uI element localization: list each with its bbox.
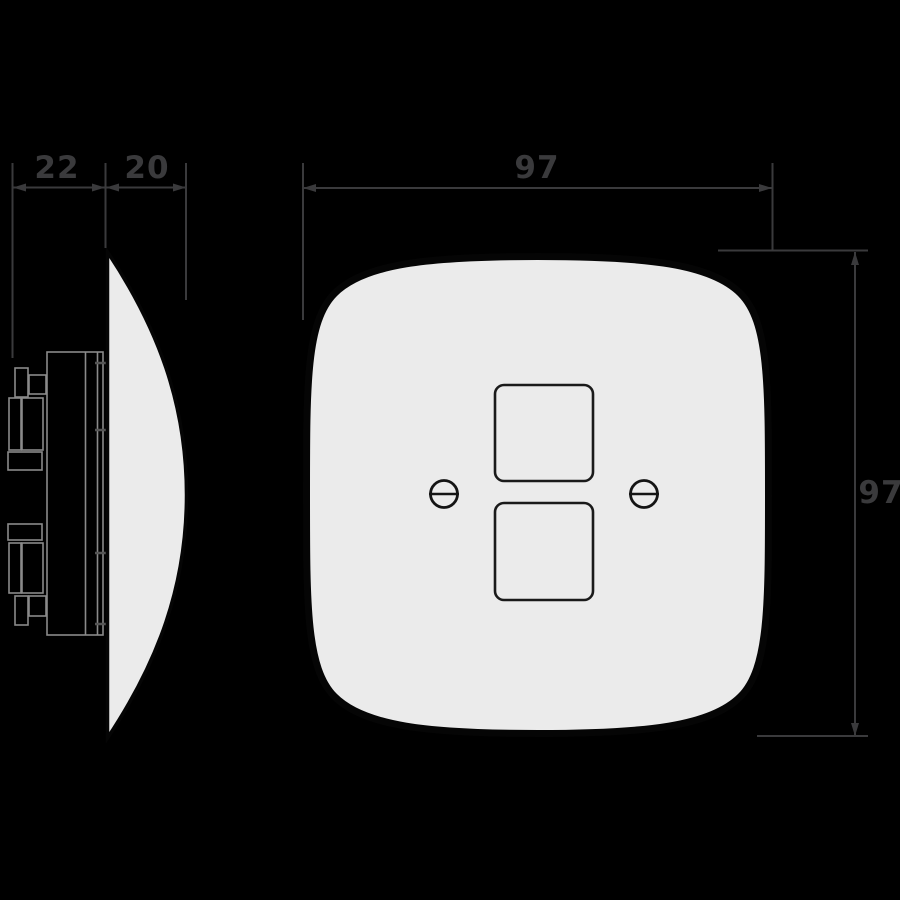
screw-left [429, 481, 459, 508]
arrow-97top-left [303, 184, 316, 192]
clamp-top-bar [8, 452, 42, 470]
clamp-bottom-bar [8, 524, 42, 540]
clamp-bottom-right [22, 543, 43, 593]
plate-side-profile [108, 252, 187, 738]
claw-bottom-2 [29, 596, 46, 616]
claw-bottom-1 [15, 596, 28, 625]
clamp-bottom-left [9, 543, 21, 593]
technical-drawing-canvas: 22 20 97 97 [0, 0, 900, 900]
dim-label-plate-depth: 20 [115, 153, 179, 184]
front-view [307, 257, 769, 734]
claw-top-2 [29, 375, 46, 394]
plate-front-face [307, 257, 769, 734]
plate-dimension-drawing [0, 0, 900, 900]
screw-right [629, 481, 659, 508]
side-view [8, 252, 187, 738]
dim-label-plate-width: 97 [505, 153, 569, 184]
claw-top-1 [15, 368, 28, 397]
dim-label-plate-height: 97 [849, 478, 900, 509]
mechanism-body [47, 352, 103, 635]
clamp-top-left [9, 398, 21, 450]
arrow-22-left [13, 184, 26, 192]
clamp-top-right [22, 398, 43, 450]
arrow-97right-down [851, 723, 859, 736]
mounting-mechanism [8, 352, 106, 635]
arrow-97right-up [851, 252, 859, 265]
dim-label-mechanism-depth: 22 [25, 153, 89, 184]
arrow-20-left [106, 184, 119, 192]
arrow-22-right [92, 184, 105, 192]
arrow-97top-right [759, 184, 772, 192]
arrow-20-right [173, 184, 186, 192]
